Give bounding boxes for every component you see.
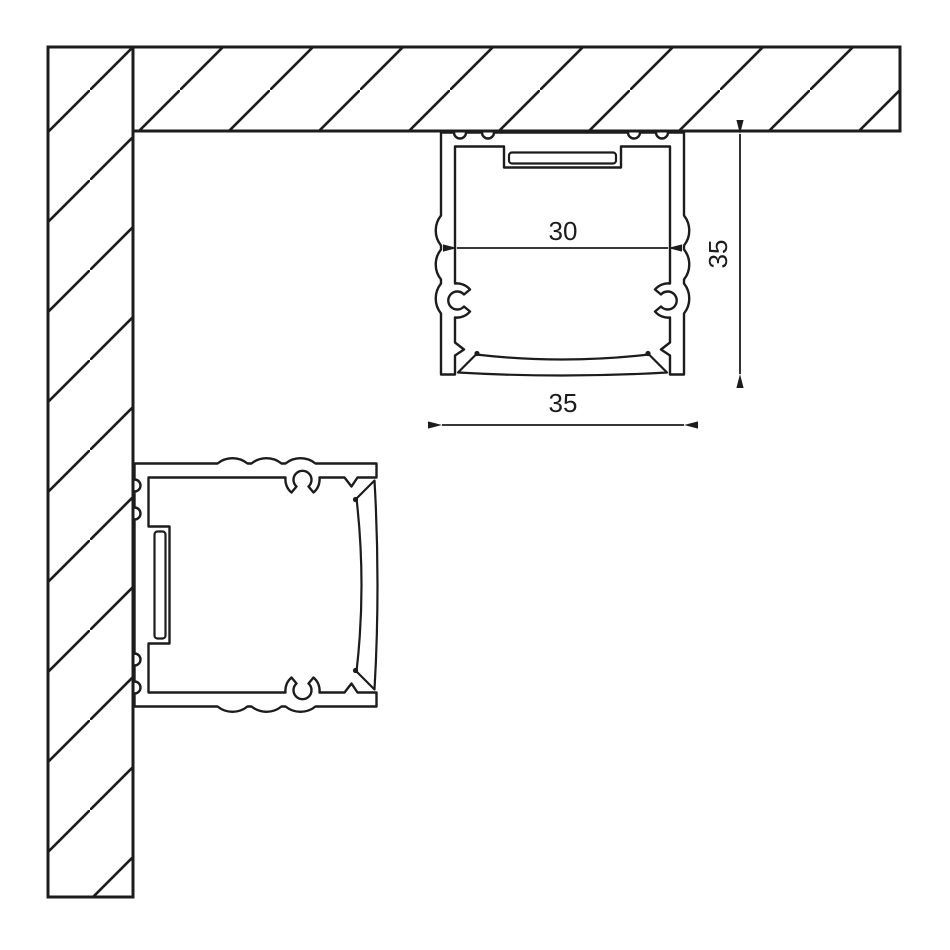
dimension-inner-width: 30 — [457, 216, 668, 248]
ceiling-section — [133, 47, 900, 131]
dimension-profile-height-label: 35 — [703, 240, 733, 269]
drawing-svg: 30 35 35 — [0, 0, 950, 950]
wall-mounted-profile — [135, 458, 378, 712]
technical-drawing: 30 35 35 — [0, 0, 950, 950]
wall-section — [48, 47, 133, 897]
dimension-profile-width-label: 35 — [549, 388, 578, 418]
dimension-inner-width-label: 30 — [549, 216, 578, 246]
ceiling-mounted-profile — [436, 133, 690, 376]
dimension-profile-width: 35 — [442, 388, 684, 425]
dimension-profile-height: 35 — [703, 134, 740, 374]
